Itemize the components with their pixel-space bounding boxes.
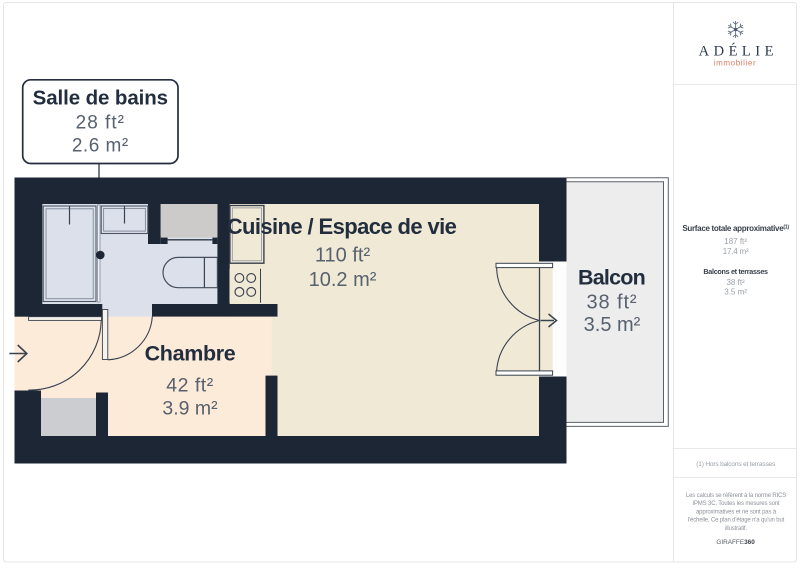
svg-text:2.6 m²: 2.6 m² bbox=[72, 136, 129, 157]
svg-text:Balcons et terrasses: Balcons et terrasses bbox=[703, 267, 768, 276]
svg-text:Cuisine / Espace de vie: Cuisine / Espace de vie bbox=[227, 214, 457, 239]
svg-text:Surface totale approximative(1: Surface totale approximative(1) bbox=[682, 224, 789, 233]
svg-text:42 ft²: 42 ft² bbox=[166, 375, 213, 397]
svg-text:GIRAFFE360: GIRAFFE360 bbox=[716, 539, 755, 546]
svg-text:Salle de bains: Salle de bains bbox=[33, 87, 168, 110]
svg-text:approximatives et ne sont pas: approximatives et ne sont pas à bbox=[696, 509, 777, 515]
svg-text:(1) Hors balcons et terrasses: (1) Hors balcons et terrasses bbox=[696, 461, 776, 468]
svg-text:immobilier: immobilier bbox=[714, 59, 756, 68]
svg-text:l'échelle. Ce plan d'étage n'a: l'échelle. Ce plan d'étage n'a qu'un but bbox=[688, 518, 785, 524]
svg-text:illustratif.: illustratif. bbox=[725, 526, 747, 532]
svg-text:110 ft²: 110 ft² bbox=[315, 245, 371, 267]
svg-text:28 ft²: 28 ft² bbox=[76, 113, 125, 134]
svg-text:38 ft²: 38 ft² bbox=[587, 292, 638, 314]
svg-text:3.5 m²: 3.5 m² bbox=[724, 288, 747, 297]
svg-text:Les calculs se réfèrent à la n: Les calculs se réfèrent à la norme RICS bbox=[686, 493, 786, 499]
svg-text:3.5 m²: 3.5 m² bbox=[584, 314, 641, 336]
svg-text:IPMS 3C. Toutes les mesures so: IPMS 3C. Toutes les mesures sont bbox=[692, 501, 780, 507]
svg-text:10.2 m²: 10.2 m² bbox=[309, 269, 377, 291]
svg-text:3.9 m²: 3.9 m² bbox=[162, 398, 218, 420]
svg-text:Balcon: Balcon bbox=[578, 265, 645, 289]
svg-text:Chambre: Chambre bbox=[145, 342, 236, 366]
svg-text:ADÉLIE: ADÉLIE bbox=[699, 43, 778, 60]
svg-text:38 ft²: 38 ft² bbox=[726, 278, 745, 287]
svg-text:17.4 m²: 17.4 m² bbox=[723, 247, 749, 256]
svg-text:187 ft²: 187 ft² bbox=[724, 237, 747, 246]
